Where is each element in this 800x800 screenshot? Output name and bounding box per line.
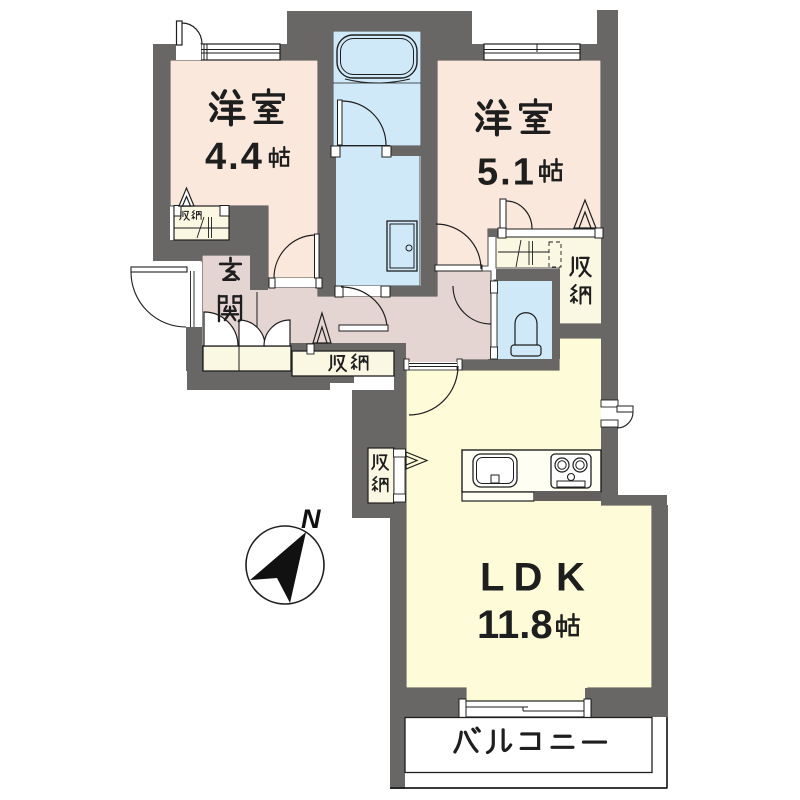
svg-text:N: N [301, 504, 321, 534]
svg-text:11.8: 11.8 [477, 603, 553, 647]
svg-text:D: D [514, 556, 543, 600]
svg-text:5.1: 5.1 [477, 152, 536, 194]
svg-text:L: L [480, 556, 504, 600]
svg-text:K: K [556, 556, 585, 600]
svg-text:4.4: 4.4 [205, 136, 264, 178]
